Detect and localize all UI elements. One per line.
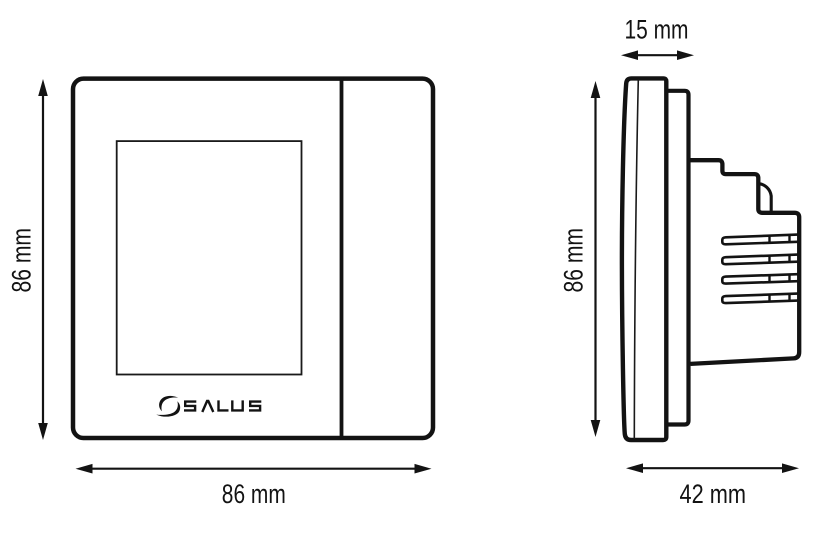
svg-text:86 mm: 86 mm bbox=[222, 479, 286, 509]
svg-text:42 mm: 42 mm bbox=[680, 479, 747, 509]
svg-text:86 mm: 86 mm bbox=[559, 228, 589, 293]
svg-text:15 mm: 15 mm bbox=[625, 14, 689, 44]
svg-text:86 mm: 86 mm bbox=[7, 228, 37, 293]
